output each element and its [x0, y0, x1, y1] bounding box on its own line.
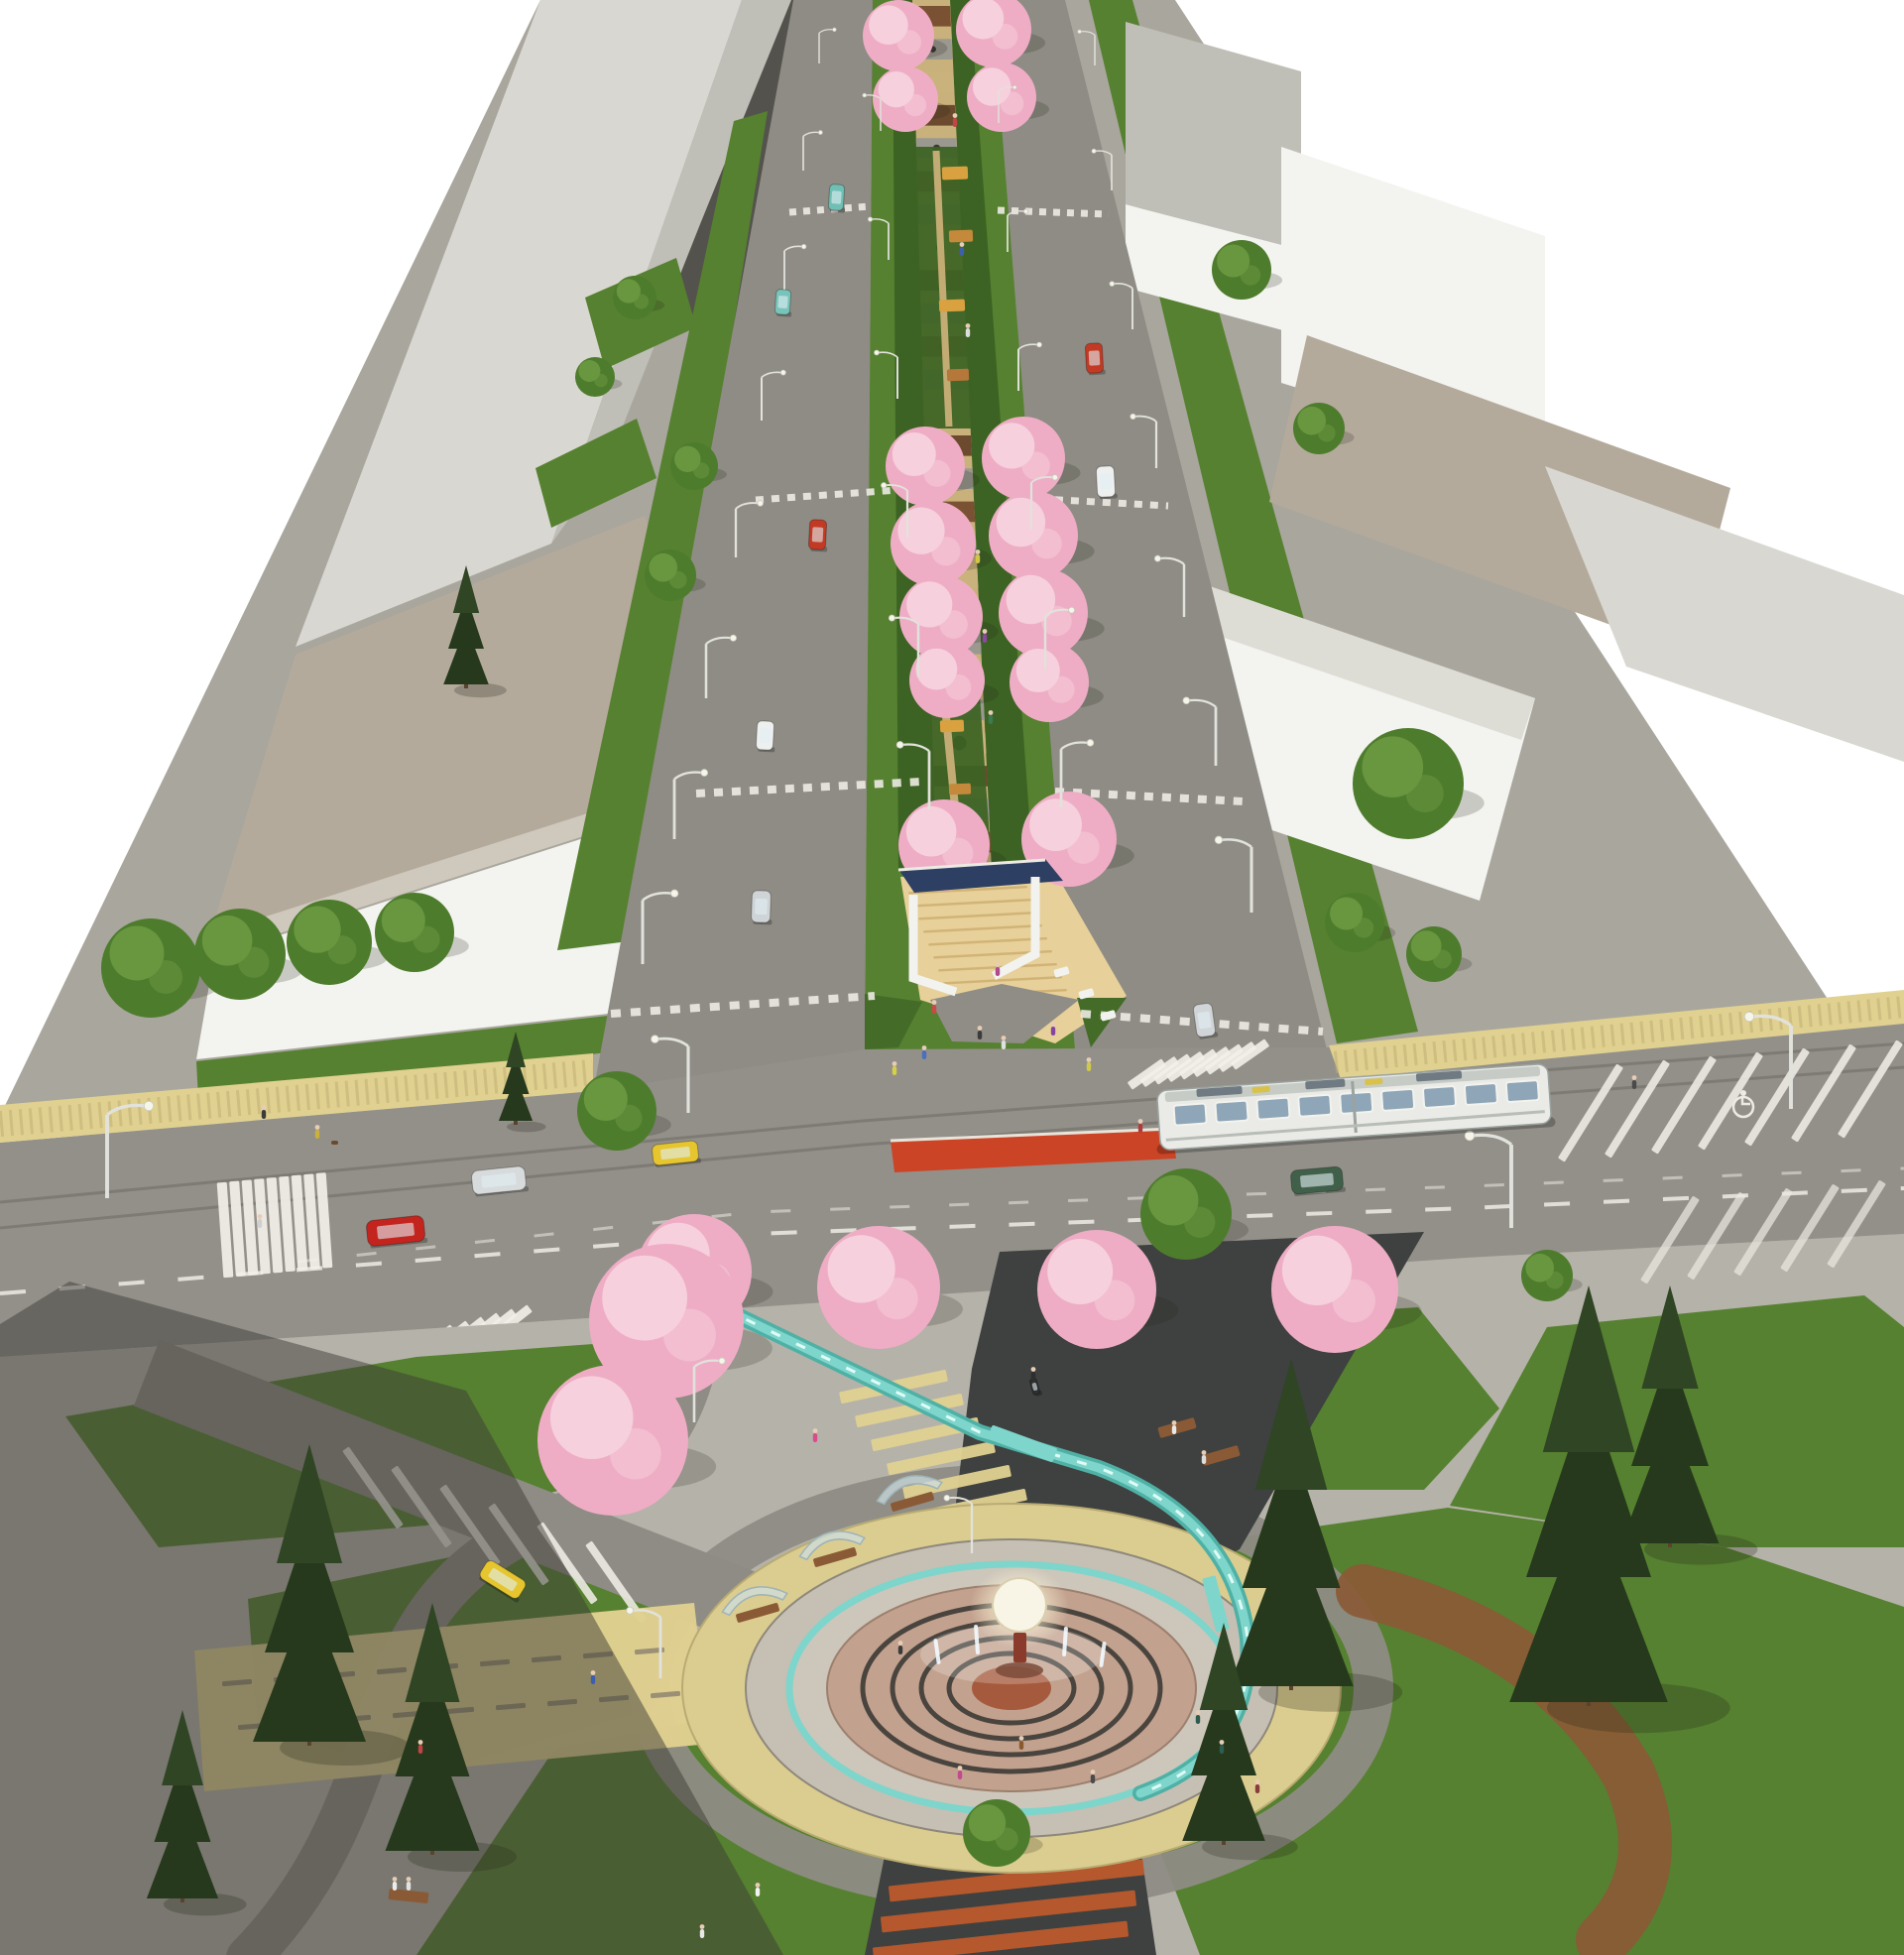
pedestrian: [756, 1883, 761, 1896]
pedestrian: [407, 1877, 412, 1891]
car: [1096, 465, 1118, 499]
car: [1290, 1166, 1346, 1197]
render-canvas: [0, 0, 1904, 1955]
pedestrian: [1031, 1367, 1036, 1381]
pedestrian: [922, 1045, 927, 1059]
pedestrian: [892, 1061, 897, 1075]
pedestrian: [1632, 1075, 1637, 1089]
pedestrian: [700, 1924, 705, 1938]
car: [1085, 342, 1106, 375]
pedestrian: [315, 1125, 320, 1139]
pedestrian: [983, 629, 988, 643]
dog: [331, 1141, 338, 1145]
pedestrian: [1019, 1736, 1024, 1750]
kiosk: [949, 784, 971, 795]
car: [808, 520, 829, 552]
boulevard-masterplan-render: [0, 0, 1904, 1955]
pedestrian: [976, 550, 981, 563]
kiosk: [942, 167, 968, 181]
pedestrian: [1172, 1420, 1177, 1434]
pedestrian: [958, 1766, 963, 1779]
pedestrian: [978, 1026, 983, 1039]
pedestrian: [1220, 1740, 1225, 1754]
kiosk: [939, 300, 965, 312]
pedestrian: [966, 323, 971, 337]
pedestrian: [1202, 1450, 1207, 1464]
pedestrian: [1091, 1770, 1096, 1783]
pedestrian: [989, 710, 994, 724]
pedestrian: [898, 1641, 903, 1654]
pedestrian: [1087, 1057, 1092, 1071]
pedestrian: [932, 1000, 937, 1014]
kiosk: [949, 230, 973, 243]
pedestrian: [1255, 1779, 1260, 1793]
car: [756, 721, 776, 753]
pedestrian: [262, 1105, 267, 1119]
sculpture-base: [996, 1662, 1043, 1678]
sculpture-figure: [1013, 1633, 1026, 1662]
pedestrian: [960, 242, 965, 256]
car: [828, 184, 847, 213]
pedestrian: [393, 1877, 398, 1891]
pedestrian: [1138, 1119, 1143, 1133]
sphere-sculpture: [993, 1578, 1046, 1632]
pedestrian: [258, 1214, 263, 1228]
pedestrian: [996, 962, 1001, 976]
pedestrian: [1002, 1036, 1007, 1049]
kiosk: [947, 369, 969, 382]
pedestrian: [1051, 1022, 1056, 1036]
pedestrian: [813, 1428, 818, 1442]
car: [774, 290, 793, 317]
pedestrian: [418, 1740, 423, 1754]
pedestrian: [1196, 1710, 1201, 1724]
kiosk: [940, 720, 964, 733]
pedestrian: [591, 1670, 596, 1684]
pedestrian: [953, 113, 958, 127]
car: [751, 891, 773, 925]
